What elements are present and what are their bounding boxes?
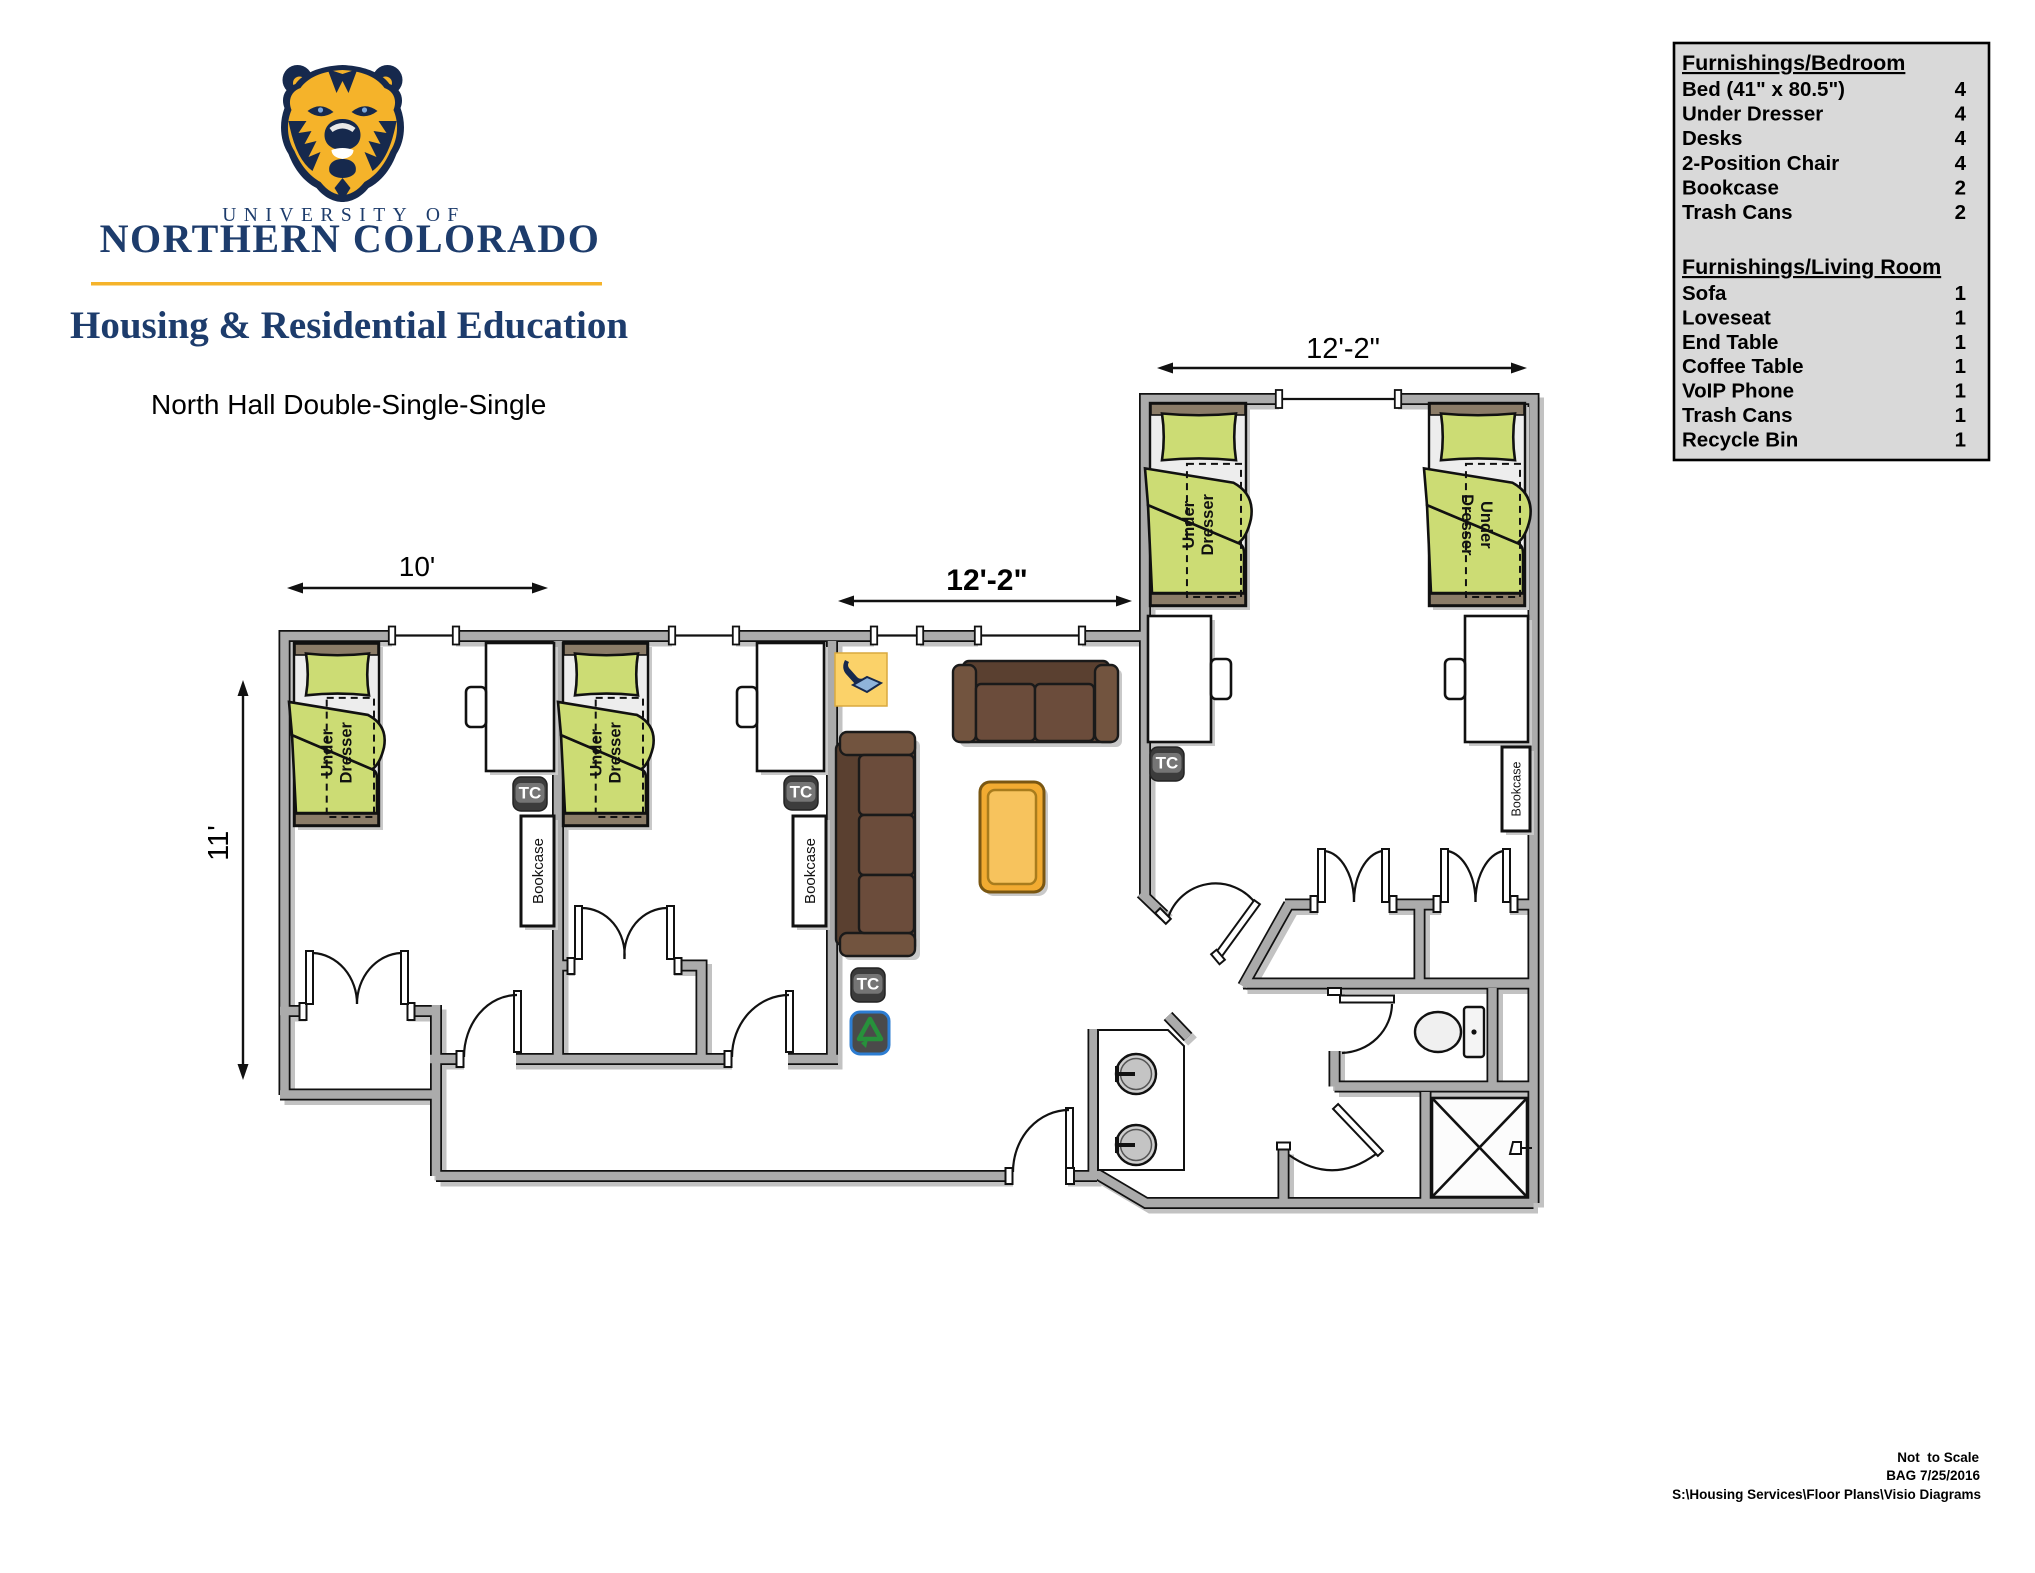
svg-text:11': 11' [203,825,235,861]
svg-text:VoIP Phone: VoIP Phone [1682,380,1794,403]
svg-text:1: 1 [1955,380,1966,403]
svg-text:1: 1 [1955,355,1966,378]
svg-text:4: 4 [1955,152,1967,175]
svg-text:1: 1 [1955,331,1966,354]
svg-text:10': 10' [399,551,436,582]
svg-text:S:\Housing Services\Floor Plan: S:\Housing Services\Floor Plans\Visio Di… [1672,1487,1981,1502]
svg-text:Bookcase: Bookcase [1682,176,1779,199]
svg-text:NORTHERN COLORADO: NORTHERN COLORADO [100,216,601,261]
svg-text:Furnishings/Living Room: Furnishings/Living Room [1682,255,1941,279]
svg-text:4: 4 [1955,127,1967,150]
svg-text:Dresser: Dresser [338,721,356,783]
svg-text:Under: Under [588,728,606,776]
svg-text:TC: TC [857,974,880,993]
svg-text:Desks: Desks [1682,127,1742,150]
svg-text:Dresser: Dresser [1458,494,1476,556]
svg-text:Coffee Table: Coffee Table [1682,355,1804,378]
svg-text:Recycle Bin: Recycle Bin [1682,428,1798,451]
svg-text:End Table: End Table [1682,331,1778,354]
svg-text:Loveseat: Loveseat [1682,306,1771,329]
svg-text:Under Dresser: Under Dresser [1682,103,1823,126]
svg-text:Under: Under [1180,500,1198,548]
svg-text:1: 1 [1955,306,1966,329]
svg-text:Dresser: Dresser [607,721,625,783]
svg-text:Not to Scale: Not to Scale [1897,1450,1979,1465]
svg-text:4: 4 [1955,78,1967,101]
svg-text:North Hall Double-Single-Singl: North Hall Double-Single-Single [151,389,546,420]
svg-text:TC: TC [519,783,542,802]
svg-text:1: 1 [1955,404,1966,427]
svg-text:Bookcase: Bookcase [802,838,819,904]
svg-text:Sofa: Sofa [1682,282,1727,305]
svg-text:4: 4 [1955,103,1967,126]
svg-text:Under: Under [1477,501,1495,549]
svg-text:12'-2": 12'-2" [946,564,1027,597]
svg-text:Housing & Residential Educatio: Housing & Residential Education [70,304,628,347]
svg-text:Dresser: Dresser [1199,493,1217,555]
svg-text:Bookcase: Bookcase [530,838,547,904]
svg-text:2: 2 [1955,176,1966,199]
svg-text:Bed (41" x 80.5"): Bed (41" x 80.5") [1682,78,1845,101]
svg-text:1: 1 [1955,428,1966,451]
svg-text:1: 1 [1955,282,1966,305]
svg-text:Trash Cans: Trash Cans [1682,201,1793,224]
svg-text:2: 2 [1955,201,1966,224]
svg-text:Bookcase: Bookcase [1510,762,1524,817]
svg-text:BAG 7/25/2016: BAG 7/25/2016 [1886,1468,1980,1483]
svg-text:TC: TC [1156,753,1179,772]
svg-text:Trash Cans: Trash Cans [1682,404,1793,427]
svg-text:Under: Under [319,728,337,776]
svg-text:TC: TC [790,782,813,801]
svg-text:12'-2": 12'-2" [1306,333,1380,365]
svg-text:2-Position Chair: 2-Position Chair [1682,152,1839,175]
svg-text:Furnishings/Bedroom: Furnishings/Bedroom [1682,51,1905,75]
